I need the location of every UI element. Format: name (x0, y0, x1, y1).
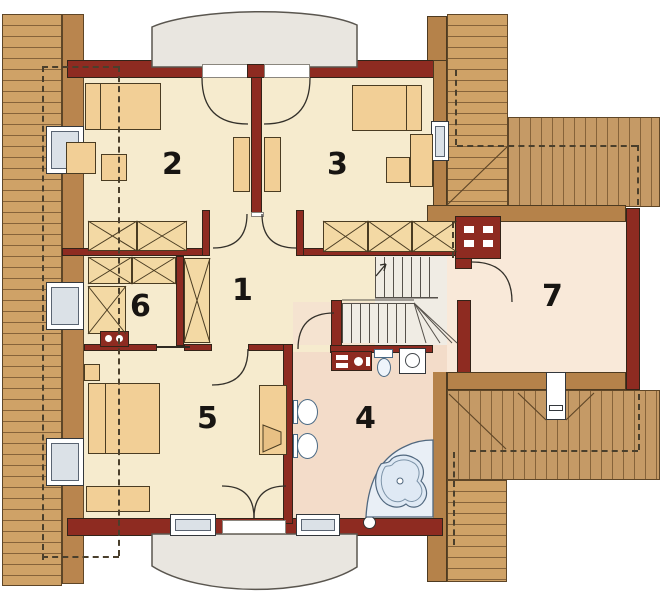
room-label-6: 6 (130, 292, 151, 322)
door-arc-room3-hall (262, 214, 296, 248)
door-arc-room2-hall (213, 214, 247, 248)
door-arc-balcony-room3 (264, 78, 310, 124)
line-overlay (0, 0, 664, 600)
wardrobe-x-lines (88, 221, 457, 343)
door-arc-hall-bath (298, 313, 334, 349)
staircase-direction-arrow (376, 264, 386, 276)
room-label-4: 4 (355, 404, 376, 434)
floor-plan: 1 2 3 4 5 6 7 (0, 0, 664, 600)
door-arc-double-right (254, 486, 286, 518)
room-label-3: 3 (327, 150, 348, 180)
staircase-winder-fan (342, 264, 457, 343)
bathtub (366, 440, 433, 517)
door-arc-landing-room7 (472, 262, 512, 302)
room-label-2: 2 (162, 150, 183, 180)
tv-icon (263, 425, 281, 452)
door-arc-hall-room5 (212, 349, 248, 385)
door-arc-balcony-room2 (202, 78, 248, 124)
room-label-1: 1 (232, 276, 253, 306)
bathtub-drain (397, 478, 403, 484)
door-arc-double-left (222, 486, 254, 518)
room-label-5: 5 (197, 404, 218, 434)
roof-hip-lines (447, 146, 594, 449)
room-label-7: 7 (542, 282, 563, 312)
